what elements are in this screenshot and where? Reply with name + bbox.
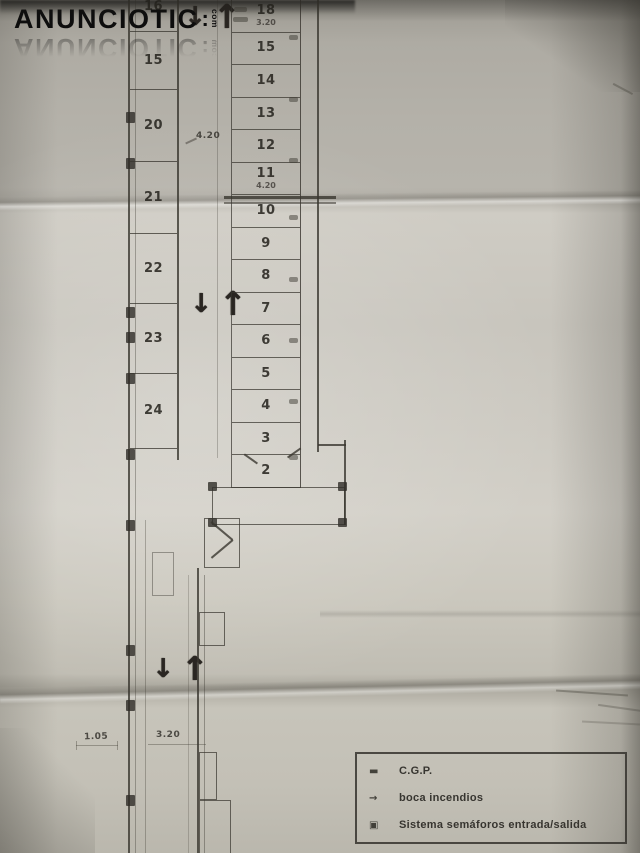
column-block <box>126 645 135 656</box>
joint-line <box>224 202 336 204</box>
legend-item: ▣ Sistema semáforos entrada/salida <box>369 819 613 831</box>
watermark-reflection-suffix: com <box>210 39 220 58</box>
watermark-text: ANUNCIOTIC <box>14 6 199 33</box>
parking-stall: 5 <box>232 358 300 391</box>
dimension-tick <box>76 741 77 750</box>
watermark-reflection: ANUNCIOTIC : com <box>14 34 220 61</box>
column-block <box>338 518 347 527</box>
watermark-reflection-colon: : <box>202 37 209 59</box>
dimension-tick <box>289 399 298 404</box>
stall-number: 6 <box>261 334 271 348</box>
stall-number: 24 <box>144 404 163 418</box>
stall-number: 12 <box>256 139 275 153</box>
joint-line <box>224 196 336 199</box>
wall-jog-outline <box>199 800 231 853</box>
stall-number: 5 <box>261 367 271 381</box>
parking-stall: 4 <box>232 390 300 423</box>
cgp-symbol-icon: ▬ <box>369 766 399 777</box>
wall-line <box>317 0 319 452</box>
watermark-reflection-text: ANUNCIOTIC <box>14 34 199 61</box>
wall-jog-outline <box>199 752 217 800</box>
door-outline <box>152 552 174 596</box>
parking-stall: 2 <box>232 455 300 488</box>
dimension-line <box>148 744 206 745</box>
dimension-label: 3.20 <box>156 730 180 740</box>
stall-number: 22 <box>144 262 163 276</box>
parking-stall: 7 <box>232 293 300 326</box>
stall-number: 7 <box>261 302 271 316</box>
wall-line <box>318 444 346 446</box>
stall-number: 14 <box>256 74 275 88</box>
illegible-annotation <box>234 7 247 12</box>
legend-item: → boca incendios <box>369 792 613 804</box>
dimension-tick <box>289 97 298 102</box>
column-block <box>126 520 135 531</box>
dimension-tick <box>289 338 298 343</box>
column-block <box>126 449 135 460</box>
paper-photo: ANUNCIOTIC : com ANUNCIOTIC : com 16 15 <box>0 0 640 853</box>
parking-stall: 9 <box>232 228 300 261</box>
arrow-down-icon: ↓ <box>152 656 174 685</box>
wall-line <box>145 520 146 853</box>
parking-stall: 114.20 <box>232 163 300 196</box>
aisle-line <box>217 0 218 458</box>
dimension-tick <box>289 215 298 220</box>
wall-line <box>188 575 189 853</box>
dimension-tick <box>117 741 118 750</box>
wall-line <box>177 0 179 460</box>
watermark-suffix: com <box>210 9 220 28</box>
stall-dimension: 3.20 <box>256 18 276 27</box>
dimension-tick <box>289 35 298 40</box>
dimension-label: 4.20 <box>196 131 220 141</box>
stall-number: 13 <box>256 107 275 121</box>
stall-number: 20 <box>144 119 163 133</box>
stall-number: 2 <box>261 464 271 478</box>
dimension-line <box>76 745 118 746</box>
traffic-light-symbol-icon: ▣ <box>369 820 399 831</box>
legend-label: boca incendios <box>399 792 483 804</box>
parking-stall: 21 <box>130 162 177 234</box>
column-block <box>126 795 135 806</box>
column-block <box>338 482 347 491</box>
illegible-annotation <box>233 17 248 22</box>
stall-number: 15 <box>256 41 275 55</box>
arrow-down-icon: ↓ <box>190 291 212 320</box>
parking-stall: 3 <box>232 423 300 456</box>
stall-number: 23 <box>144 332 163 346</box>
watermark-main-row: ANUNCIOTIC : com <box>14 6 220 33</box>
stall-number: 3 <box>261 432 271 446</box>
parking-stall: 20 <box>130 90 177 162</box>
parking-stall: 14 <box>232 65 300 98</box>
parking-stall: 23 <box>130 304 177 374</box>
wall-jog-outline <box>199 612 225 646</box>
watermark-colon: : <box>202 8 209 30</box>
stall-number: 11 <box>256 167 275 181</box>
column-block <box>208 482 217 491</box>
parking-stall: 10 <box>232 195 300 228</box>
legend-label: Sistema semáforos entrada/salida <box>399 819 587 831</box>
legend-box: ▬ C.G.P. → boca incendios ▣ Sistema semá… <box>355 752 627 844</box>
ramp-direction-arrows-icon: ↓ ↑ <box>152 652 208 685</box>
dimension-tick <box>289 158 298 163</box>
fire-hydrant-symbol-icon: → <box>369 793 399 804</box>
stall-number: 21 <box>144 191 163 205</box>
stall-number: 10 <box>256 204 275 218</box>
column-block <box>126 700 135 711</box>
legend-item: ▬ C.G.P. <box>369 765 613 777</box>
stair-core-outline <box>204 518 240 568</box>
watermark: ANUNCIOTIC : com ANUNCIOTIC : com <box>14 6 220 61</box>
parking-stall: 13 <box>232 98 300 131</box>
stall-number: 9 <box>261 237 271 251</box>
dimension-label: 1.05 <box>84 732 109 743</box>
stall-number: 18 <box>256 4 275 18</box>
parking-column-left: 16 15 20 21 22 23 24 <box>130 0 177 449</box>
stall-number: 8 <box>261 269 271 283</box>
stall-number: 4 <box>261 399 271 413</box>
floor-plan: 16 15 20 21 22 23 24 4.20 ↓ ↑ ↓ ↑ ↓ ↑ 18… <box>0 0 640 853</box>
stall-dimension: 4.20 <box>256 181 276 190</box>
parking-stall: 22 <box>130 234 177 304</box>
parking-stall: 24 <box>130 374 177 449</box>
legend-label: C.G.P. <box>399 765 432 777</box>
dimension-tick <box>289 277 298 282</box>
parking-column-right: 183.20 15 14 13 12 114.20 10 9 8 7 6 5 4… <box>231 0 301 488</box>
